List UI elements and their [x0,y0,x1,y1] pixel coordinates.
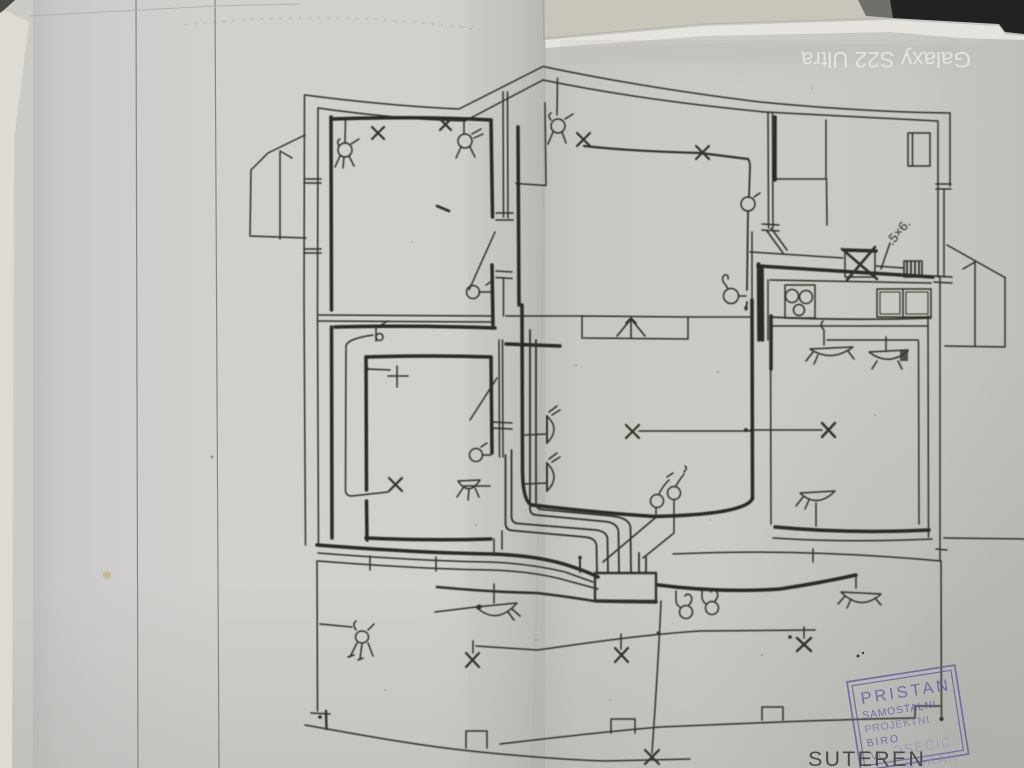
svg-text:Galaxy S22 Ultra: Galaxy S22 Ultra [800,47,971,72]
svg-text:SUTEREN: SUTEREN [808,747,926,768]
